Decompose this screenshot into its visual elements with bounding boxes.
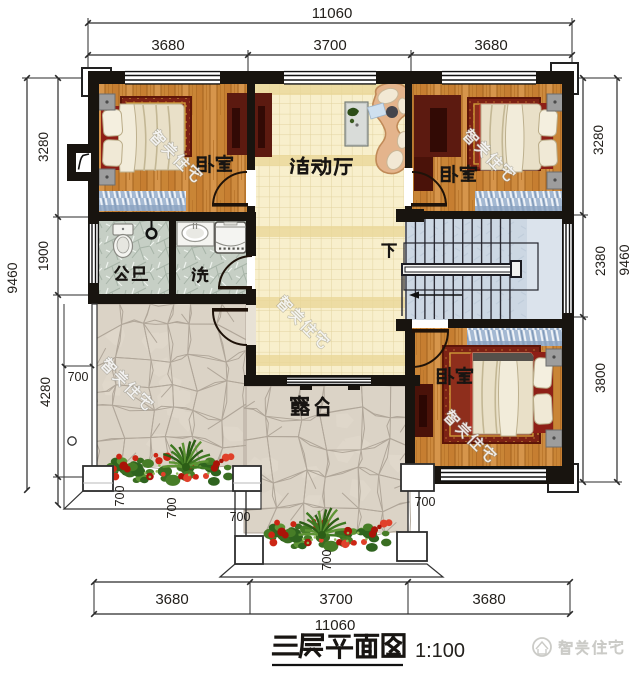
- svg-text:3800: 3800: [593, 363, 608, 393]
- svg-text:3280: 3280: [36, 132, 51, 162]
- svg-text:1:100: 1:100: [415, 640, 465, 662]
- svg-text:9460: 9460: [616, 244, 632, 275]
- svg-text:700: 700: [320, 550, 334, 571]
- svg-text:700: 700: [113, 486, 127, 507]
- svg-text:700: 700: [68, 370, 89, 384]
- svg-text:700: 700: [165, 498, 179, 519]
- svg-text:1900: 1900: [36, 241, 51, 271]
- svg-text:3680: 3680: [472, 591, 505, 608]
- svg-text:3700: 3700: [313, 37, 346, 54]
- svg-text:3280: 3280: [591, 125, 606, 155]
- svg-text:11060: 11060: [312, 5, 353, 22]
- svg-text:9460: 9460: [4, 262, 20, 293]
- svg-text:3680: 3680: [155, 591, 188, 608]
- svg-text:2380: 2380: [593, 246, 608, 276]
- svg-text:11060: 11060: [315, 617, 356, 634]
- svg-text:4280: 4280: [38, 377, 53, 407]
- svg-text:3680: 3680: [151, 37, 184, 54]
- svg-text:700: 700: [415, 495, 436, 509]
- svg-text:3680: 3680: [474, 37, 507, 54]
- svg-text:3700: 3700: [319, 591, 352, 608]
- svg-text:700: 700: [230, 510, 251, 524]
